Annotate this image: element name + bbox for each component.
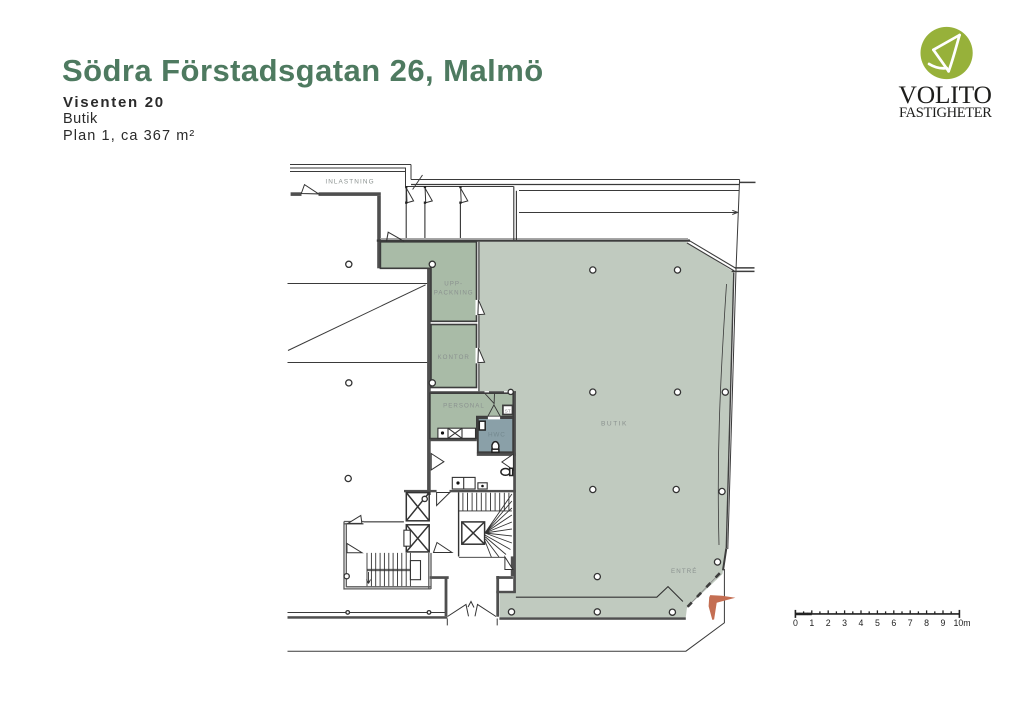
svg-text:0: 0: [793, 618, 798, 628]
svg-text:INLASTNING: INLASTNING: [325, 179, 374, 186]
svg-text:ENTRÉ: ENTRÉ: [671, 568, 697, 575]
svg-text:3: 3: [842, 618, 847, 628]
svg-text:ST: ST: [505, 409, 511, 414]
svg-text:KONTOR: KONTOR: [438, 354, 470, 361]
svg-text:2: 2: [826, 618, 831, 628]
svg-text:1: 1: [809, 618, 814, 628]
svg-text:4: 4: [859, 618, 864, 628]
svg-text:8: 8: [924, 618, 929, 628]
svg-text:9: 9: [941, 618, 946, 628]
svg-text:5: 5: [875, 618, 880, 628]
svg-text:PERSONAL: PERSONAL: [443, 403, 485, 410]
svg-text:10m: 10m: [953, 618, 970, 628]
svg-text:BUTIK: BUTIK: [601, 421, 628, 428]
svg-text:UPP-: UPP-: [444, 281, 463, 288]
svg-text:HWC: HWC: [488, 431, 506, 438]
svg-text:PACKNING: PACKNING: [434, 289, 474, 296]
svg-text:7: 7: [908, 618, 913, 628]
svg-text:6: 6: [891, 618, 896, 628]
